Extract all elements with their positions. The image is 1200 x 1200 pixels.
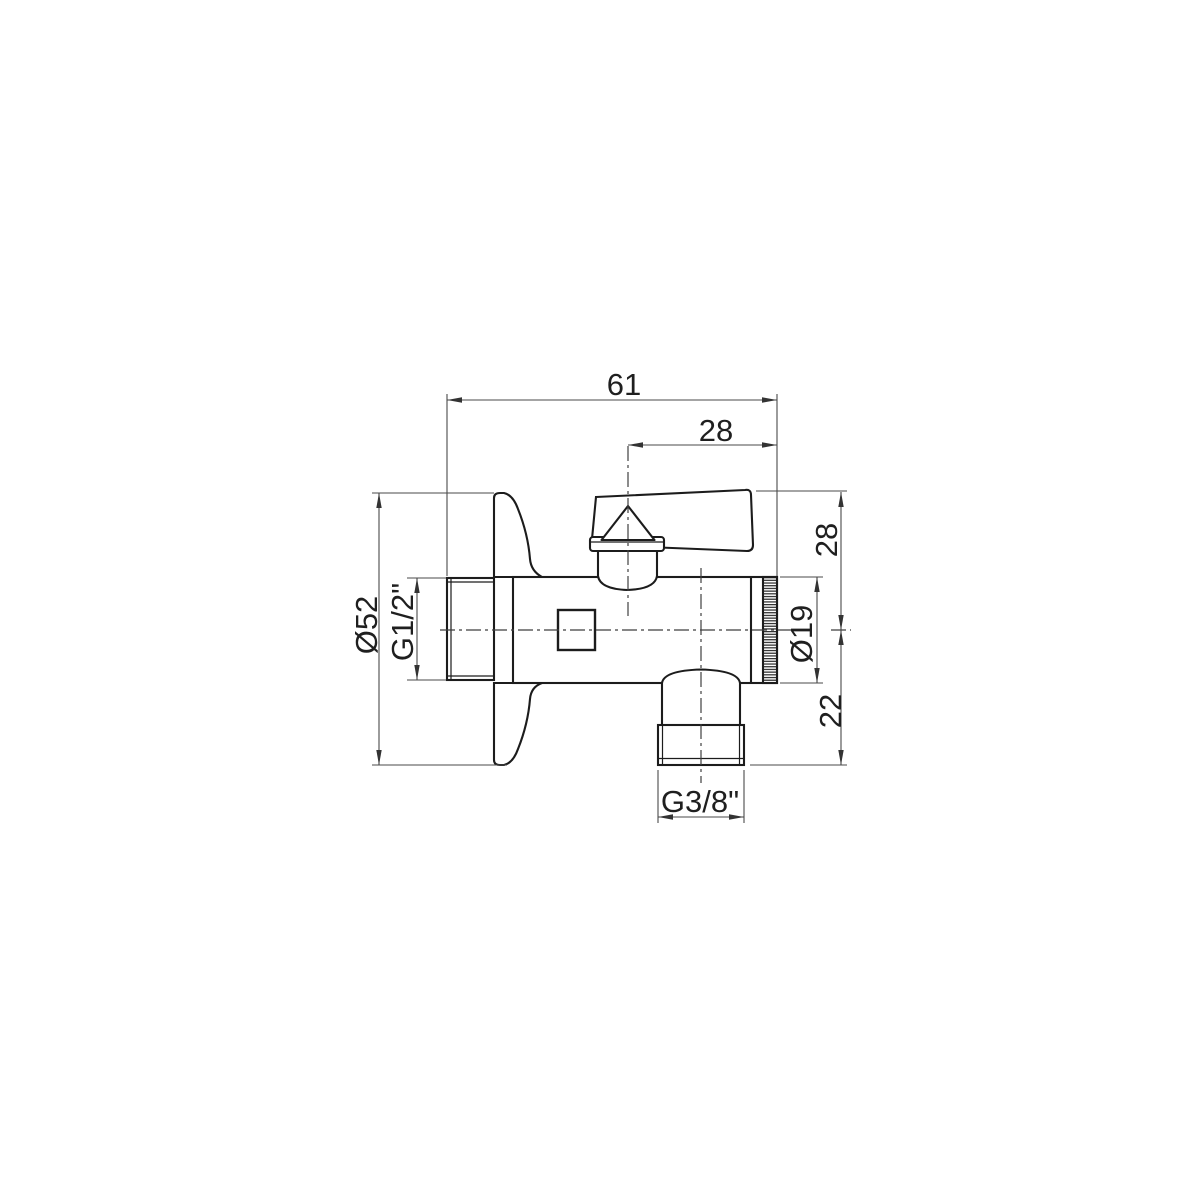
- dim-inlet-thread: G1/2": [385, 578, 446, 680]
- wall-rosette-lower: [494, 683, 542, 765]
- arrowhead: [814, 668, 819, 683]
- arrowhead: [447, 397, 462, 402]
- dim-label-28-top: 28: [699, 413, 733, 448]
- arrowhead: [762, 442, 777, 447]
- valve-object: [447, 490, 777, 765]
- arrowhead: [414, 665, 419, 680]
- arrowhead: [628, 442, 643, 447]
- arrowhead: [762, 397, 777, 402]
- arrowhead: [838, 492, 843, 507]
- dim-label-g12: G1/2": [385, 583, 420, 661]
- arrowhead: [838, 750, 843, 765]
- wall-rosette-upper: [494, 493, 542, 577]
- dim-label-22: 22: [813, 694, 848, 728]
- angle-valve-drawing: 61 28 28 22 Ø19 Ø52: [0, 0, 1200, 1200]
- dim-handle-offset: 28: [628, 413, 777, 448]
- arrowhead: [376, 750, 381, 765]
- inlet-thread-outline: [447, 578, 494, 680]
- inlet-thread: [447, 578, 494, 680]
- dim-label-28-right: 28: [809, 523, 844, 557]
- technical-drawing-canvas: 61 28 28 22 Ø19 Ø52: [0, 0, 1200, 1200]
- arrowhead: [376, 493, 381, 508]
- dim-label-61: 61: [607, 367, 641, 402]
- arrowhead: [814, 577, 819, 592]
- arrowhead: [838, 615, 843, 630]
- arrowhead: [838, 630, 843, 645]
- dim-label-g38: G3/8": [661, 784, 739, 819]
- dim-label-d19: Ø19: [784, 605, 819, 664]
- dim-label-d52: Ø52: [349, 596, 384, 655]
- dim-cap-diameter: Ø19: [780, 577, 823, 683]
